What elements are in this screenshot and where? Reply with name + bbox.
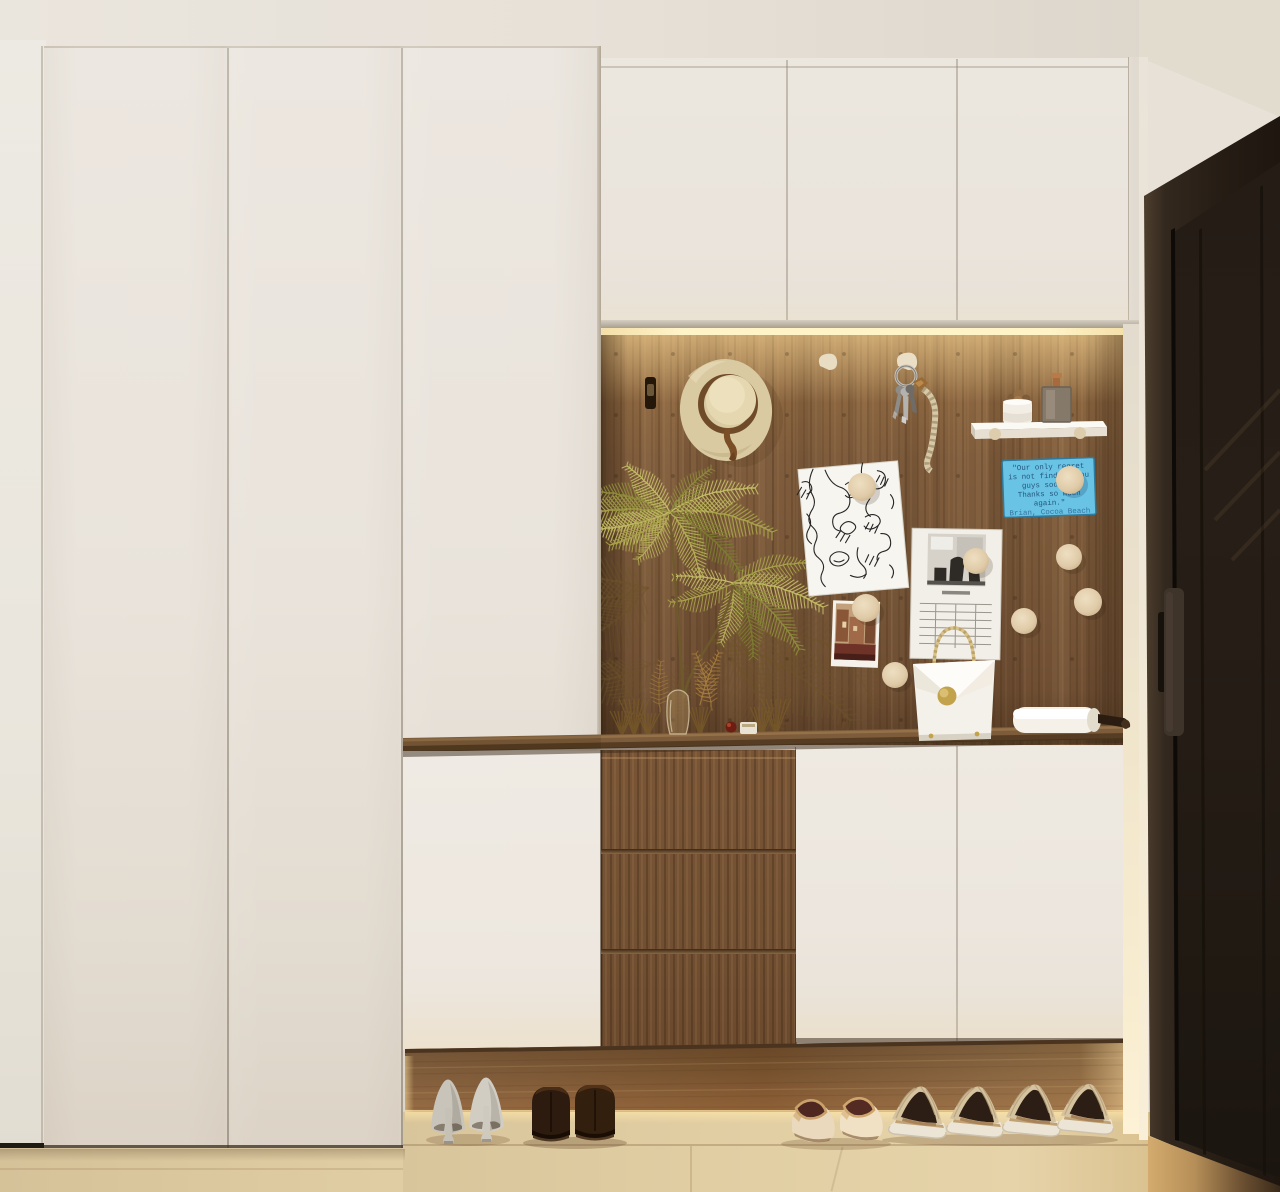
- svg-text:again.": again.": [1034, 499, 1066, 508]
- svg-text:Brian, Cocoa Beach: Brian, Cocoa Beach: [1009, 508, 1090, 519]
